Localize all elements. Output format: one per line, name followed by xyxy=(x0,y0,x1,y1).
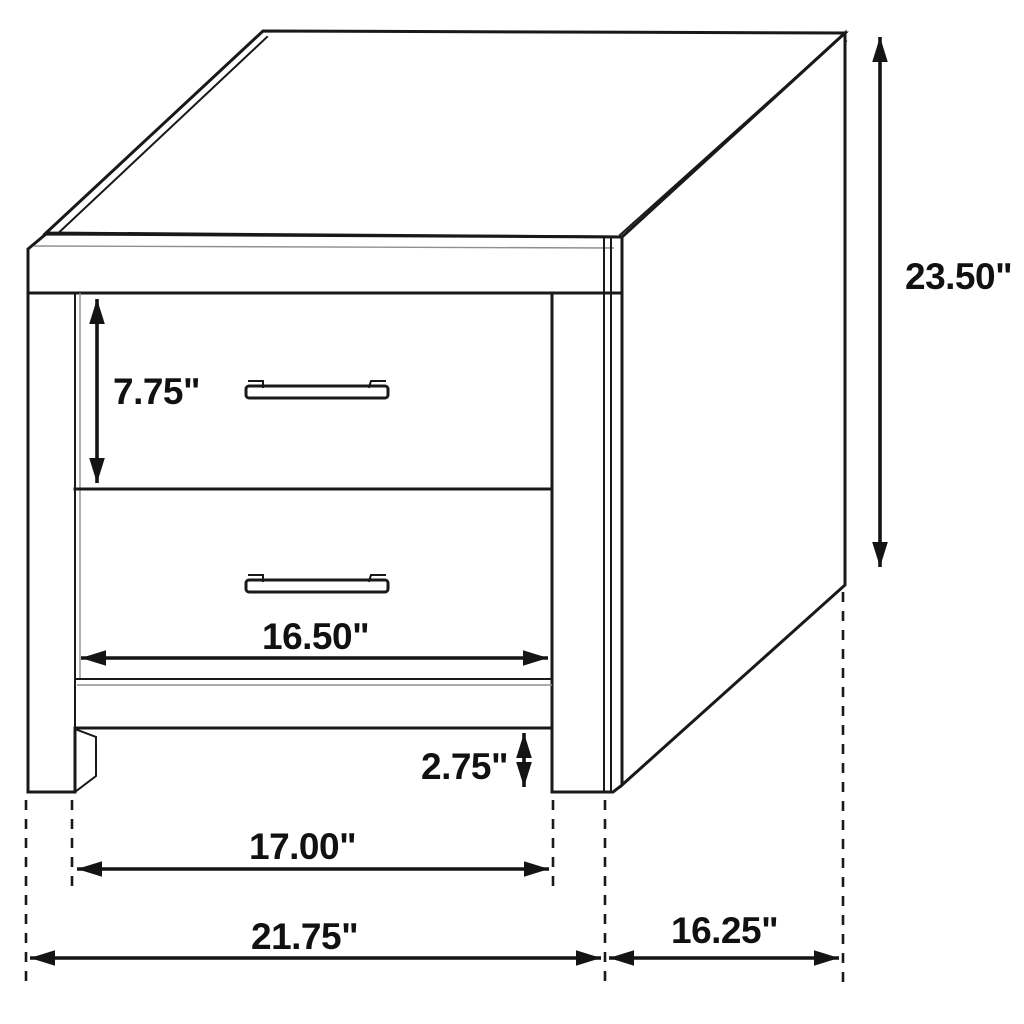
nightstand-dimension-diagram: 7.75" 23.50" 16.50" 2.75" 17.00" 21.75" … xyxy=(0,0,1024,1024)
dimension-label-opening-width: 17.00" xyxy=(249,826,356,867)
dimension-leg-height: 2.75" xyxy=(421,733,524,787)
dimension-label-drawer-height: 7.75" xyxy=(113,371,200,412)
dimension-label-drawer-width: 16.50" xyxy=(262,616,369,657)
dimension-label-overall-width: 21.75" xyxy=(251,916,358,957)
dimension-depth: 16.25" xyxy=(609,910,839,958)
dimension-opening-width: 17.00" xyxy=(77,826,549,869)
front-face xyxy=(28,234,622,792)
dimension-label-overall-height: 23.50" xyxy=(905,256,1012,297)
left-leg xyxy=(75,729,96,792)
dimension-label-depth: 16.25" xyxy=(671,910,778,951)
dimension-overall-width: 21.75" xyxy=(30,916,601,958)
dimension-label-leg-height: 2.75" xyxy=(421,746,508,787)
dimension-overall-height: 23.50" xyxy=(880,37,1012,567)
diagram-canvas: 7.75" 23.50" 16.50" 2.75" 17.00" 21.75" … xyxy=(0,0,1024,1024)
